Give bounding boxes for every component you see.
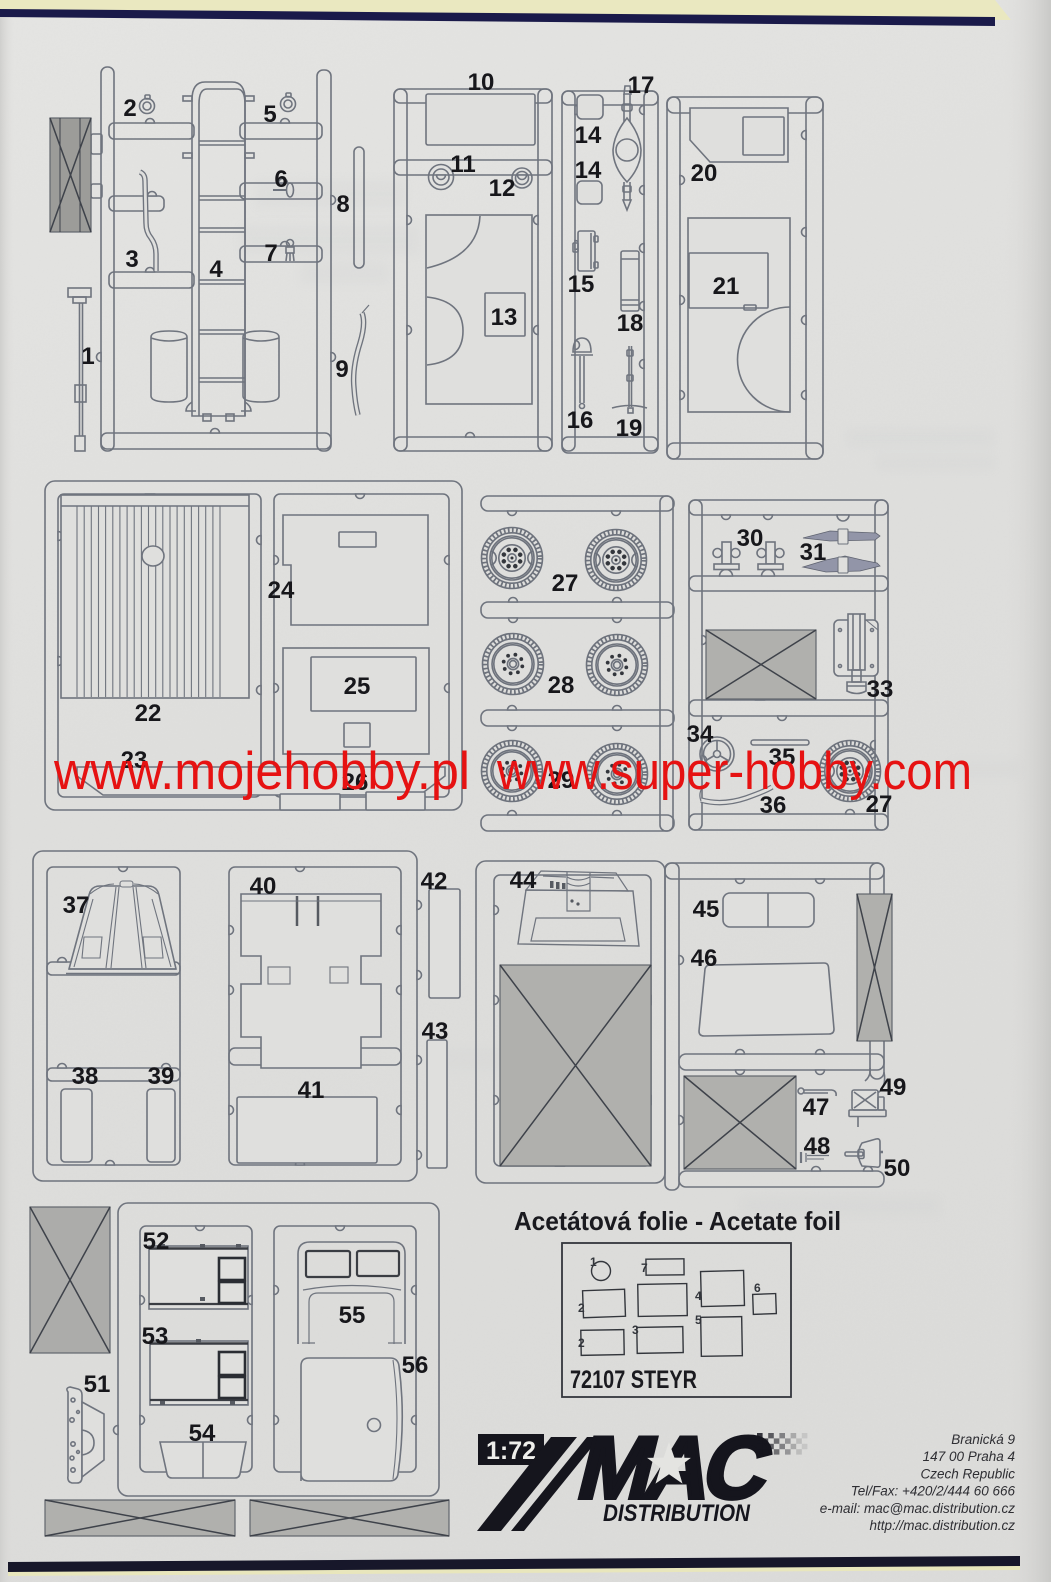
svg-text:6: 6 — [754, 1281, 761, 1295]
svg-text:7: 7 — [641, 1261, 648, 1275]
svg-text:44: 44 — [510, 867, 537, 894]
svg-text:53: 53 — [142, 1323, 169, 1350]
svg-text:52: 52 — [143, 1228, 170, 1255]
svg-text:3: 3 — [125, 246, 138, 273]
svg-text:50: 50 — [884, 1155, 911, 1182]
svg-text:Branická 9: Branická 9 — [951, 1432, 1015, 1447]
svg-text:28: 28 — [548, 672, 575, 699]
svg-text:www.mojehobby.pl: www.mojehobby.pl — [53, 742, 470, 801]
svg-text:40: 40 — [250, 873, 277, 900]
svg-text:22: 22 — [135, 700, 162, 727]
svg-text:24: 24 — [268, 577, 295, 604]
svg-text:47: 47 — [803, 1094, 830, 1121]
svg-text:2: 2 — [578, 1301, 585, 1315]
svg-text:20: 20 — [691, 160, 718, 187]
svg-text:Acetátová folie - Acetate foil: Acetátová folie - Acetate foil — [514, 1206, 841, 1236]
svg-text:http://mac.distribution.cz: http://mac.distribution.cz — [869, 1518, 1015, 1533]
svg-text:41: 41 — [298, 1077, 325, 1104]
svg-text:25: 25 — [344, 673, 371, 700]
svg-text:7: 7 — [264, 240, 277, 267]
svg-text:30: 30 — [737, 525, 764, 552]
svg-text:48: 48 — [804, 1133, 831, 1160]
svg-text:147 00 Praha 4: 147 00 Praha 4 — [923, 1449, 1015, 1464]
svg-text:www.super-hobby.com: www.super-hobby.com — [496, 742, 972, 801]
svg-text:45: 45 — [693, 896, 720, 923]
svg-text:12: 12 — [489, 175, 516, 202]
svg-text:11: 11 — [450, 151, 475, 178]
svg-text:38: 38 — [72, 1063, 99, 1090]
svg-text:8: 8 — [336, 191, 349, 218]
svg-text:9: 9 — [335, 356, 348, 383]
svg-text:Tel/Fax: +420/2/444 60 666: Tel/Fax: +420/2/444 60 666 — [851, 1484, 1016, 1499]
svg-text:5: 5 — [263, 101, 276, 128]
svg-text:5: 5 — [695, 1313, 702, 1327]
svg-text:43: 43 — [422, 1018, 449, 1045]
svg-text:4: 4 — [209, 256, 223, 283]
svg-text:2: 2 — [578, 1336, 585, 1350]
svg-text:46: 46 — [691, 945, 718, 972]
svg-text:21: 21 — [713, 273, 740, 300]
svg-text:19: 19 — [616, 415, 643, 442]
svg-text:49: 49 — [880, 1074, 907, 1101]
svg-text:27: 27 — [552, 570, 579, 597]
svg-text:DISTRIBUTION: DISTRIBUTION — [603, 1500, 751, 1527]
svg-text:18: 18 — [617, 310, 644, 337]
svg-text:14: 14 — [575, 122, 602, 149]
svg-text:39: 39 — [148, 1063, 175, 1090]
svg-text:3: 3 — [632, 1323, 639, 1337]
svg-text:6: 6 — [274, 166, 287, 193]
svg-text:51: 51 — [84, 1371, 111, 1398]
svg-text:16: 16 — [567, 407, 594, 434]
svg-text:15: 15 — [568, 271, 595, 298]
svg-text:1:72: 1:72 — [486, 1437, 536, 1465]
svg-text:56: 56 — [402, 1352, 429, 1379]
svg-text:e-mail: mac@mac.distribution.c: e-mail: mac@mac.distribution.cz — [820, 1501, 1016, 1516]
svg-text:13: 13 — [491, 304, 518, 331]
svg-text:42: 42 — [421, 868, 448, 895]
svg-text:72107 STEYR: 72107 STEYR — [570, 1366, 697, 1394]
svg-text:17: 17 — [628, 72, 655, 99]
svg-text:54: 54 — [189, 1420, 216, 1447]
svg-text:1: 1 — [81, 343, 94, 370]
svg-text:37: 37 — [63, 892, 90, 919]
svg-text:4: 4 — [695, 1289, 702, 1303]
svg-text:14: 14 — [575, 157, 602, 184]
svg-text:10: 10 — [468, 69, 495, 96]
svg-text:55: 55 — [339, 1302, 366, 1329]
svg-text:Czech Republic: Czech Republic — [920, 1466, 1015, 1481]
svg-text:33: 33 — [867, 676, 894, 703]
svg-text:1: 1 — [590, 1255, 597, 1269]
svg-text:2: 2 — [123, 95, 136, 122]
